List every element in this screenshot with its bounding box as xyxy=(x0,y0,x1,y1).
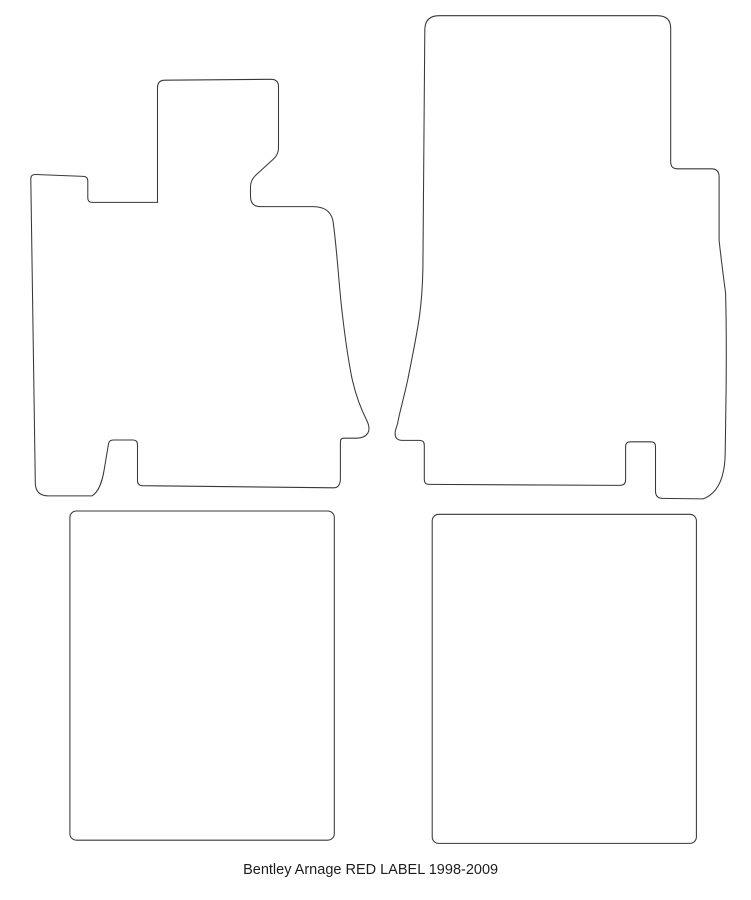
svg-text:Bentley Arnage RED LABEL 1998-: Bentley Arnage RED LABEL 1998-2009 xyxy=(243,862,498,878)
